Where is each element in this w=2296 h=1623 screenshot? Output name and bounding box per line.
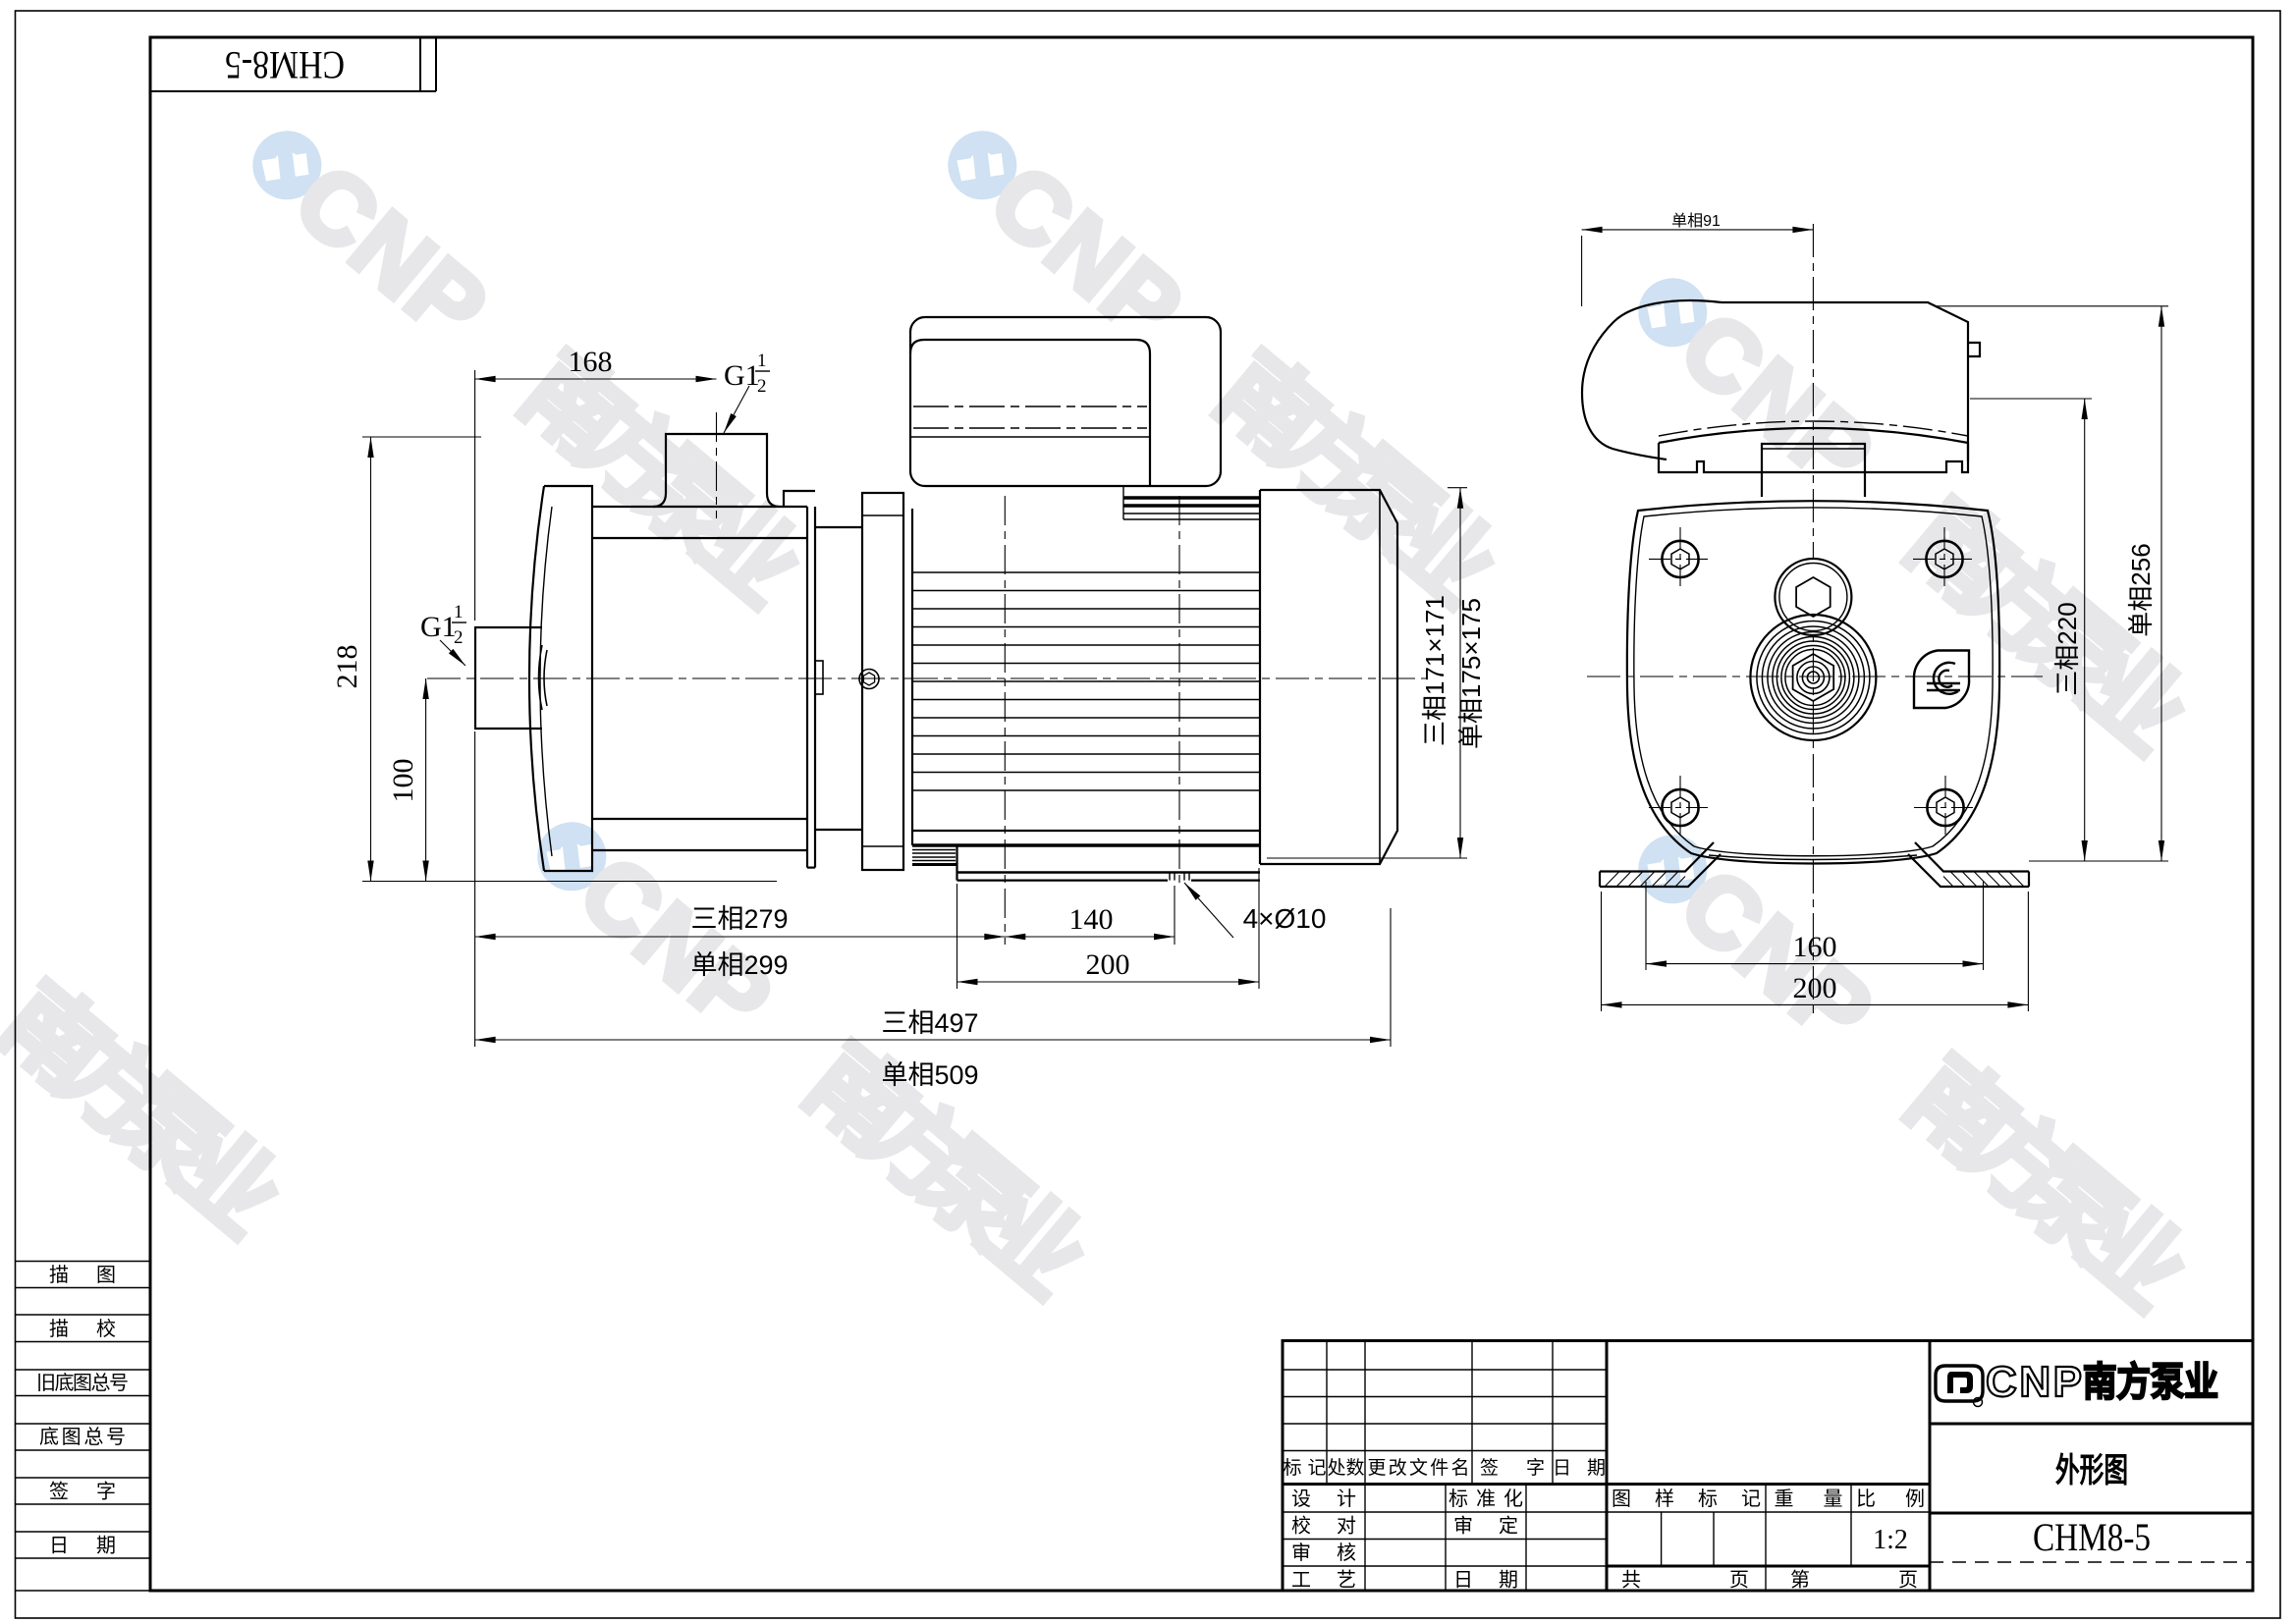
svg-text:200: 200 (1793, 972, 1837, 1004)
svg-text:处数: 处数 (1328, 1457, 1365, 1479)
svg-text:2: 2 (454, 627, 464, 648)
svg-text:4×Ø10: 4×Ø10 (1243, 903, 1327, 934)
svg-text:160: 160 (1793, 931, 1837, 963)
svg-text:第 页: 第 页 (1790, 1569, 1918, 1592)
svg-text:1: 1 (757, 351, 767, 371)
svg-text:200: 200 (1086, 948, 1130, 981)
svg-text:G1: G1 (420, 611, 457, 643)
svg-text:CHM8-5: CHM8-5 (2033, 1515, 2151, 1559)
svg-text:南方泵业: 南方泵业 (2083, 1361, 2218, 1404)
svg-text:218: 218 (331, 645, 363, 689)
svg-text:2: 2 (757, 376, 767, 397)
svg-text:标准化: 标准化 (1449, 1488, 1523, 1510)
svg-text:1: 1 (454, 602, 464, 622)
svg-text:三相497: 三相497 (881, 1008, 978, 1038)
svg-text:三相171×171: 三相171×171 (1420, 595, 1449, 746)
svg-text:1:2: 1:2 (1873, 1525, 1908, 1555)
svg-text:单相256: 单相256 (2126, 543, 2156, 636)
svg-text:CHM8-5: CHM8-5 (225, 43, 345, 87)
svg-text:单相175×175: 单相175×175 (1456, 598, 1486, 749)
svg-text:更改文件名: 更改文件名 (1368, 1457, 1470, 1479)
svg-text:140: 140 (1069, 903, 1114, 936)
svg-text:三相279: 三相279 (690, 904, 788, 934)
svg-text:单相509: 单相509 (881, 1060, 978, 1090)
svg-text:外形图: 外形图 (2055, 1452, 2128, 1489)
svg-text:旧底图总号: 旧底图总号 (36, 1372, 129, 1394)
svg-text:100: 100 (387, 759, 419, 803)
svg-text:168: 168 (569, 346, 613, 378)
svg-text:CNP: CNP (1986, 1358, 2082, 1406)
svg-text:共 页: 共 页 (1621, 1569, 1749, 1592)
svg-text:G1: G1 (724, 359, 760, 392)
svg-text:三相220: 三相220 (2052, 602, 2082, 695)
svg-text:单相299: 单相299 (690, 950, 788, 980)
svg-text:单相91: 单相91 (1671, 212, 1721, 230)
